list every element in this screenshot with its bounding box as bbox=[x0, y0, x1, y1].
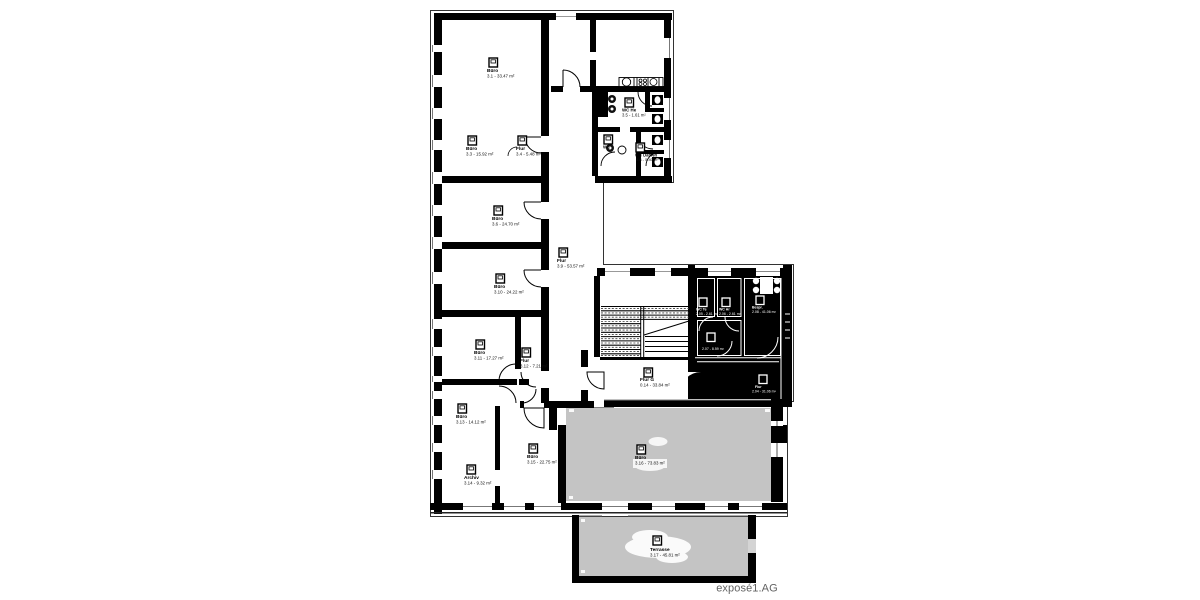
svg-text:3.9 - 53.57 m²: 3.9 - 53.57 m² bbox=[557, 264, 585, 269]
svg-text:3.1 - 33.47 m²: 3.1 - 33.47 m² bbox=[487, 74, 515, 79]
svg-text:2.08 - 41.06 m²: 2.08 - 41.06 m² bbox=[752, 310, 777, 314]
svg-text:3.5 - 1.61 m²: 3.5 - 1.61 m² bbox=[622, 113, 646, 118]
svg-text:3.3 - 15.92 m²: 3.3 - 15.92 m² bbox=[466, 152, 494, 157]
svg-text:3.15 - 22.75 m²: 3.15 - 22.75 m² bbox=[527, 460, 557, 465]
svg-text:3.10 - 24.22 m²: 3.10 - 24.22 m² bbox=[494, 290, 524, 295]
svg-text:2.06 - 2.61 m²: 2.06 - 2.61 m² bbox=[719, 312, 742, 316]
svg-text:3.17 - 45.81 m²: 3.17 - 45.81 m² bbox=[650, 553, 680, 558]
svg-text:Bespr.: Bespr. bbox=[752, 306, 763, 310]
svg-text:3.8 - 5.40 m²: 3.8 - 5.40 m² bbox=[636, 157, 659, 162]
svg-text:WC Te: WC Te bbox=[696, 308, 707, 312]
svg-text:WC Hr: WC Hr bbox=[719, 308, 730, 312]
svg-text:3.12 - 7.21 m²: 3.12 - 7.21 m² bbox=[520, 364, 548, 369]
svg-text:0.14 - 33.84 m²: 0.14 - 33.84 m² bbox=[640, 383, 670, 388]
svg-text:3.6 - 24.70 m²: 3.6 - 24.70 m² bbox=[492, 222, 520, 227]
svg-text:Flur: Flur bbox=[755, 385, 762, 389]
svg-text:2.07 - 8.59 m²: 2.07 - 8.59 m² bbox=[702, 347, 725, 351]
svg-text:3.16 - 73.83 m²: 3.16 - 73.83 m² bbox=[635, 461, 665, 466]
svg-text:2.05 - 2.61 m²: 2.05 - 2.61 m² bbox=[696, 312, 719, 316]
svg-text:exposé1.AG: exposé1.AG bbox=[716, 583, 778, 595]
svg-text:3.14 - 9.32 m²: 3.14 - 9.32 m² bbox=[464, 481, 492, 486]
svg-text:3.11 - 17.27 m²: 3.11 - 17.27 m² bbox=[474, 356, 504, 361]
svg-text:2.04 - 31.06 m²: 2.04 - 31.06 m² bbox=[752, 390, 777, 394]
svg-text:3.13 - 14.12 m²: 3.13 - 14.12 m² bbox=[456, 420, 486, 425]
svg-text:3.4 - 5.48 m²: 3.4 - 5.48 m² bbox=[516, 152, 541, 157]
svg-text:WC: WC bbox=[603, 145, 611, 150]
